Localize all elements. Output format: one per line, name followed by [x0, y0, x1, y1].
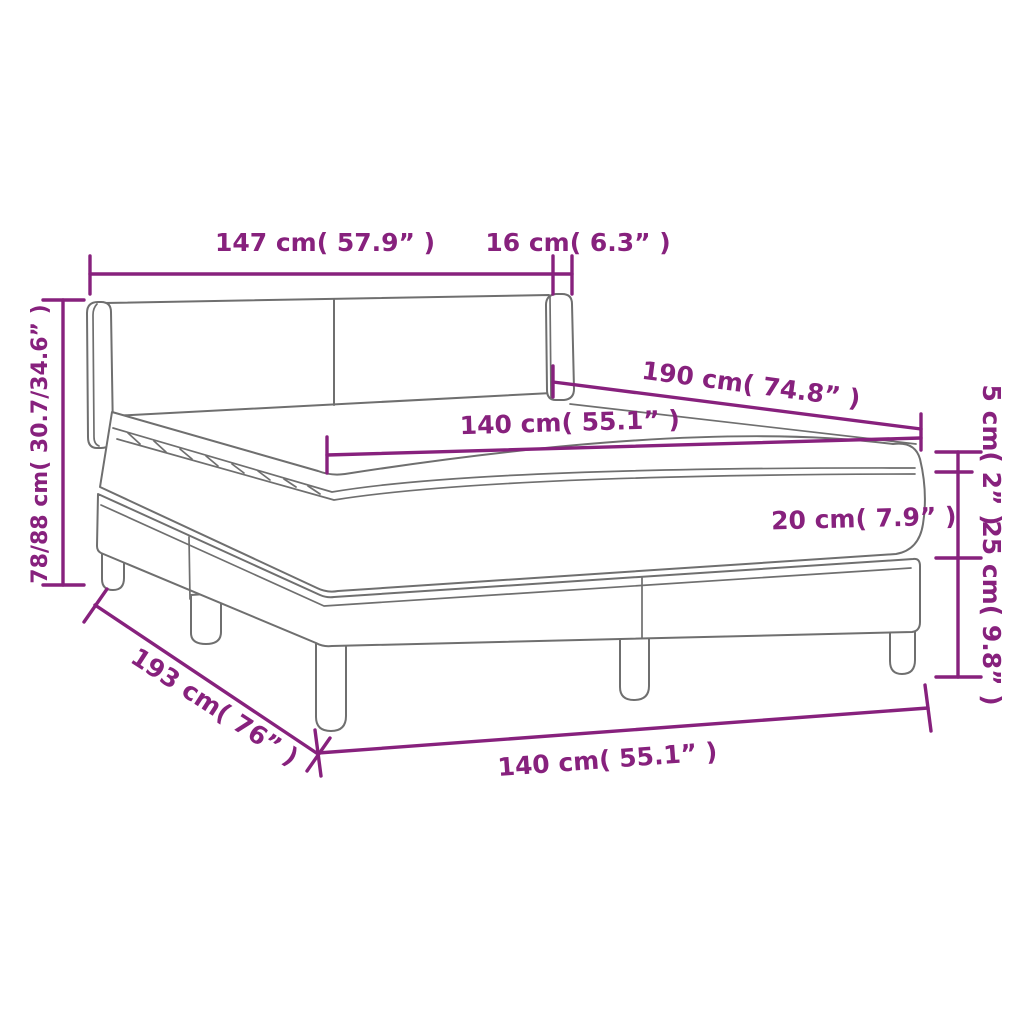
leg: [316, 640, 346, 731]
wing-depth-label: 16 cm( 6.3” ): [485, 228, 670, 257]
base-height-label: 25 cm( 9.8” ): [977, 520, 1006, 705]
dim-total-height: 78/88 cm( 30.7/34.6” ): [28, 300, 84, 585]
box-spring-left-divider: [189, 537, 190, 599]
base-width-label: 140 cm( 55.1” ): [497, 737, 719, 782]
bed-dimension-diagram: 147 cm( 57.9” ) 16 cm( 6.3” ) 78/88 cm( …: [0, 0, 1024, 1024]
headboard-width-label: 147 cm( 57.9” ): [215, 228, 435, 257]
bed-diagram-canvas: 147 cm( 57.9” ) 16 cm( 6.3” ) 78/88 cm( …: [0, 0, 1024, 1024]
dim-tick: [84, 589, 107, 622]
headboard-panel: [104, 295, 552, 416]
dim-mattress-height: 20 cm( 7.9” ): [771, 502, 957, 536]
leg: [620, 636, 649, 700]
base-length-label: 193 cm( 76” ): [126, 642, 304, 772]
mattress-height-label: 20 cm( 7.9” ): [771, 502, 957, 536]
topper-height-label: 5 cm( 2” ): [977, 384, 1006, 525]
dim-base-width: 140 cm( 55.1” ): [315, 685, 931, 782]
headboard-right-wing-seam: [550, 297, 551, 398]
mattress-width-label: 140 cm( 55.1” ): [459, 405, 680, 441]
dim-right-heights: 5 cm( 2” ) 25 cm( 9.8” ): [936, 384, 1006, 705]
total-height-label: 78/88 cm( 30.7/34.6” ): [28, 304, 53, 583]
dim-wing-depth: 16 cm( 6.3” ): [485, 228, 670, 294]
